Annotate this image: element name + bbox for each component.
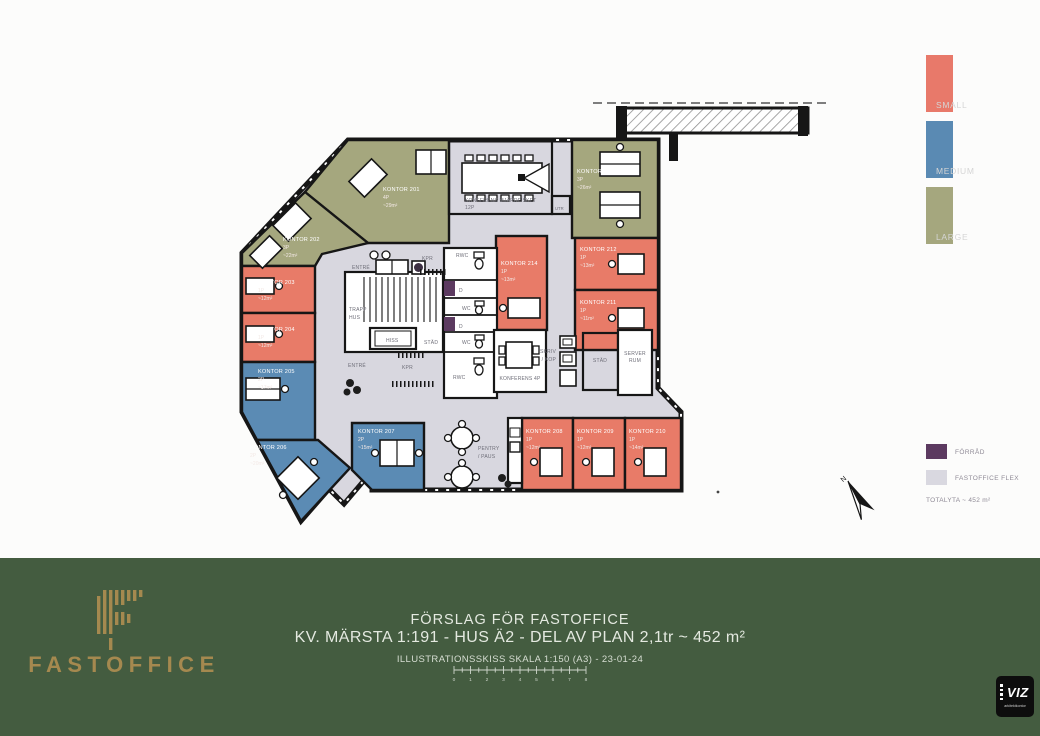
drawing-note: ILLUSTRATIONSSKISS SKALA 1:150 (A3) - 23…: [0, 654, 1040, 665]
svg-text:STÄD: STÄD: [424, 339, 438, 346]
svg-text:~12m²: ~12m²: [577, 445, 592, 451]
svg-text:~12m²: ~12m²: [258, 343, 273, 349]
svg-text:2: 2: [486, 677, 489, 683]
svg-text:1P: 1P: [580, 308, 587, 314]
wc-block: [444, 248, 497, 398]
viz-logo-name: VIZ: [1007, 685, 1029, 700]
svg-text:1P: 1P: [580, 255, 587, 261]
svg-text:WC: WC: [462, 306, 471, 312]
svg-text:1P: 1P: [258, 335, 265, 341]
svg-text:RUM: RUM: [629, 358, 641, 364]
scale-bar: 0 1 2 3 4 5 6 7 8: [450, 666, 590, 684]
svg-text:KONTOR 208: KONTOR 208: [526, 429, 563, 435]
conference-room-small: [494, 330, 546, 392]
svg-text:2P: 2P: [250, 453, 257, 459]
legend-item-forrad: FÖRRÅD: [926, 444, 1040, 459]
svg-text:KONTOR 212: KONTOR 212: [580, 247, 617, 253]
svg-text:12P: 12P: [465, 205, 475, 211]
svg-text:TRAPP: TRAPP: [349, 307, 367, 313]
svg-text:STÄD: STÄD: [593, 357, 607, 364]
drawing-subtitle: KV. MÄRSTA 1:191 - HUS Ä2 - DEL AV PLAN …: [0, 629, 1040, 647]
legend-room-sizes: SMALL MEDIUM LARGE: [926, 55, 1036, 253]
legend-item-flex: FASTOFFICE FLEX: [926, 470, 1040, 485]
svg-text:6: 6: [552, 677, 555, 683]
svg-text:ENTRÉ: ENTRÉ: [352, 264, 370, 271]
legend-area-types: FÖRRÅD FASTOFFICE FLEX TOTALYTA ~ 452 m²: [926, 444, 1040, 504]
svg-text:KONFERENS MJÄRDFISKET: KONFERENS MJÄRDFISKET: [465, 197, 536, 204]
svg-text:KONTOR 209: KONTOR 209: [577, 429, 614, 435]
svg-text:2P: 2P: [258, 377, 265, 383]
legend-item-large: LARGE: [926, 187, 953, 244]
svg-text:~22m²: ~22m²: [283, 253, 298, 259]
svg-text:1P: 1P: [577, 437, 584, 443]
title-block: FASTOFFICE FÖRSLAG FÖR FASTOFFICE KV. MÄ…: [0, 558, 1040, 736]
small-label: SMALL: [936, 100, 967, 110]
svg-text:~12m²: ~12m²: [526, 445, 541, 451]
svg-text:KONTOR 201: KONTOR 201: [383, 187, 420, 193]
legend-item-medium: MEDIUM: [926, 121, 953, 178]
svg-text:UTR: UTR: [555, 206, 564, 211]
svg-text:1P: 1P: [526, 437, 533, 443]
svg-text:3P: 3P: [283, 245, 290, 251]
svg-text:KPR: KPR: [402, 365, 413, 371]
svg-text:~29m²: ~29m²: [383, 203, 398, 209]
viz-arkitektkontor-logo: VIZ arkitektkontor: [996, 676, 1034, 717]
medium-label: MEDIUM: [936, 166, 975, 176]
svg-text:4P: 4P: [383, 195, 390, 201]
projector: [518, 174, 525, 181]
svg-text:RWC: RWC: [453, 375, 466, 381]
svg-text:3P: 3P: [577, 177, 584, 183]
svg-text:~13m²: ~13m²: [501, 277, 516, 283]
svg-text:PENTRY: PENTRY: [478, 446, 500, 452]
viz-logo-subtitle: arkitektkontor: [999, 704, 1031, 708]
forrad-closet: [444, 281, 455, 296]
svg-text:8: 8: [585, 677, 588, 683]
floor-plan: KONTOR 2014P~29m² KONTOR 2023P~22m² KONT…: [235, 98, 885, 526]
svg-text:RWC: RWC: [456, 253, 469, 259]
svg-text:~15m²: ~15m²: [358, 445, 373, 451]
north-arrow: N: [840, 475, 875, 519]
svg-text:KONTOR 203: KONTOR 203: [258, 280, 295, 286]
flex-swatch: [926, 470, 947, 485]
svg-text:~12m²: ~12m²: [258, 296, 273, 302]
forrad-closet: [444, 317, 455, 331]
svg-text:1P: 1P: [501, 269, 508, 275]
svg-text:1P: 1P: [629, 437, 636, 443]
svg-text:KONTOR 210: KONTOR 210: [629, 429, 666, 435]
svg-text:N: N: [840, 475, 848, 484]
svg-text:HISS: HISS: [386, 338, 399, 344]
svg-text:/ KOP: / KOP: [542, 357, 557, 363]
svg-text:HUS: HUS: [349, 315, 361, 321]
forrad-label: FÖRRÅD: [955, 449, 985, 456]
print-copy-area: [560, 336, 576, 386]
svg-text:ENTRÉ: ENTRÉ: [348, 362, 366, 369]
svg-text:~26m²: ~26m²: [577, 185, 592, 191]
total-area-text: TOTALYTA ~ 452 m²: [926, 497, 1040, 504]
svg-text:KONTOR 214: KONTOR 214: [501, 261, 538, 267]
drawing-title: FÖRSLAG FÖR FASTOFFICE: [0, 612, 1040, 628]
svg-text:~20m²: ~20m²: [250, 461, 265, 467]
svg-text:SERVER: SERVER: [624, 351, 646, 357]
svg-text:KONTOR 213: KONTOR 213: [577, 169, 614, 175]
svg-text:KONTOR 211: KONTOR 211: [580, 300, 616, 306]
legend-item-small: SMALL: [926, 55, 953, 112]
forrad-swatch: [926, 444, 947, 459]
svg-text:2P: 2P: [358, 437, 365, 443]
page: KONTOR 2014P~29m² KONTOR 2023P~22m² KONT…: [0, 0, 1040, 736]
svg-text:1: 1: [469, 677, 472, 683]
svg-text:KONFERENS 4P: KONFERENS 4P: [499, 376, 540, 382]
svg-text:5: 5: [535, 677, 538, 683]
svg-text:/ PAUS: / PAUS: [478, 454, 496, 460]
svg-text:~17m²: ~17m²: [258, 385, 273, 391]
svg-text:D: D: [459, 324, 463, 330]
reference-dot: [717, 491, 720, 494]
svg-text:WC: WC: [462, 340, 471, 346]
svg-text:7: 7: [568, 677, 571, 683]
svg-text:KPR: KPR: [422, 256, 433, 262]
viz-logo-dots: [1000, 684, 1003, 702]
svg-text:0: 0: [453, 677, 456, 683]
svg-text:KONTOR 206: KONTOR 206: [250, 445, 287, 451]
svg-text:~11m²: ~11m²: [580, 316, 594, 322]
svg-text:1P: 1P: [258, 288, 265, 294]
flex-label: FASTOFFICE FLEX: [955, 475, 1019, 482]
svg-text:D: D: [459, 288, 463, 294]
svg-text:SKRIV: SKRIV: [540, 349, 556, 355]
svg-text:KONTOR 205: KONTOR 205: [258, 369, 295, 375]
drawing-area: KONTOR 2014P~29m² KONTOR 2023P~22m² KONT…: [0, 0, 1040, 558]
svg-text:~14m²: ~14m²: [629, 445, 644, 451]
svg-text:~13m²: ~13m²: [580, 263, 595, 269]
svg-text:KONTOR 207: KONTOR 207: [358, 429, 395, 435]
svg-text:3: 3: [502, 677, 505, 683]
svg-text:KONTOR 204: KONTOR 204: [258, 327, 295, 333]
svg-text:KONTOR 202: KONTOR 202: [283, 237, 320, 243]
large-label: LARGE: [936, 232, 968, 242]
svg-text:4: 4: [519, 677, 522, 683]
